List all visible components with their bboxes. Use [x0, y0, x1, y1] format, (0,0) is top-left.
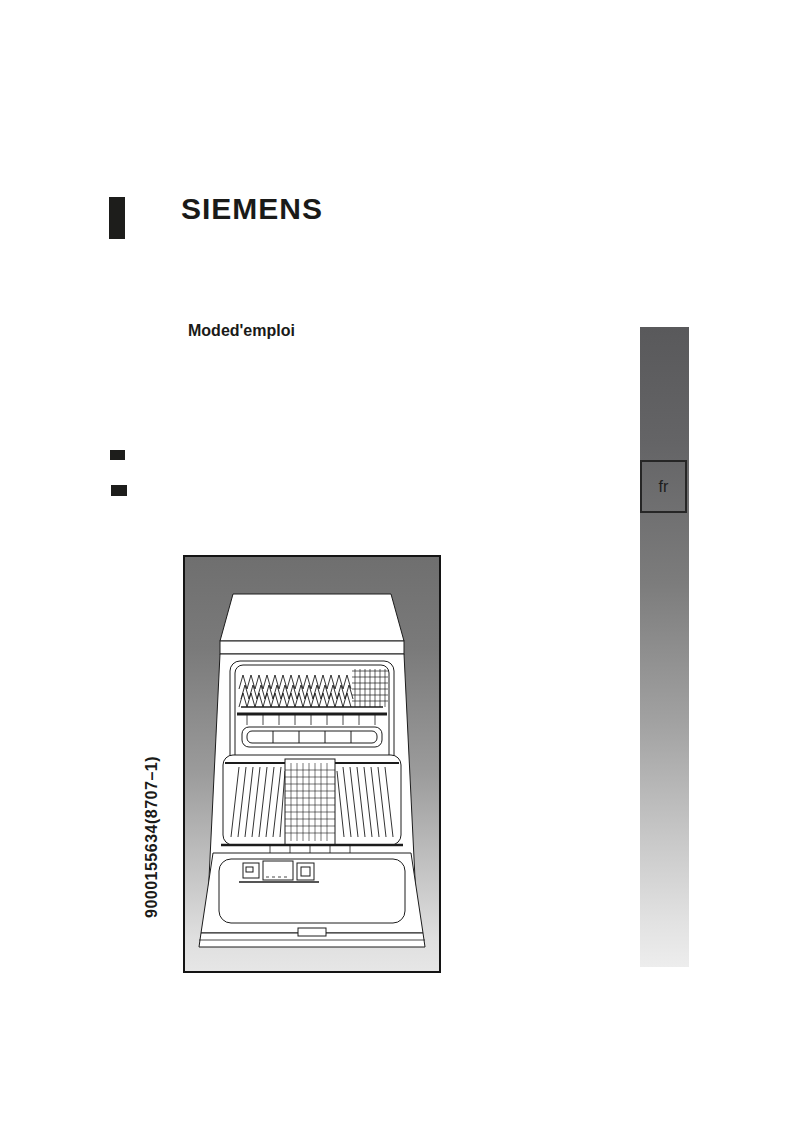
part-number: 9000155634(8707–1) [143, 756, 161, 918]
manual-cover-page: SIEMENS Moded'emploi 9000155634(8707–1) [0, 0, 802, 1134]
dishwasher-illustration-icon [185, 557, 439, 971]
language-tab-fr: fr [640, 460, 687, 513]
logo-accent-bar [109, 197, 125, 239]
language-index-bar: fr [640, 327, 689, 967]
brand-logo: SIEMENS [181, 192, 323, 226]
illustration-frame [183, 555, 441, 973]
bullet-square-icon [111, 485, 127, 496]
bullet-square-icon [110, 450, 125, 460]
page-title: Moded'emploi [188, 322, 295, 340]
